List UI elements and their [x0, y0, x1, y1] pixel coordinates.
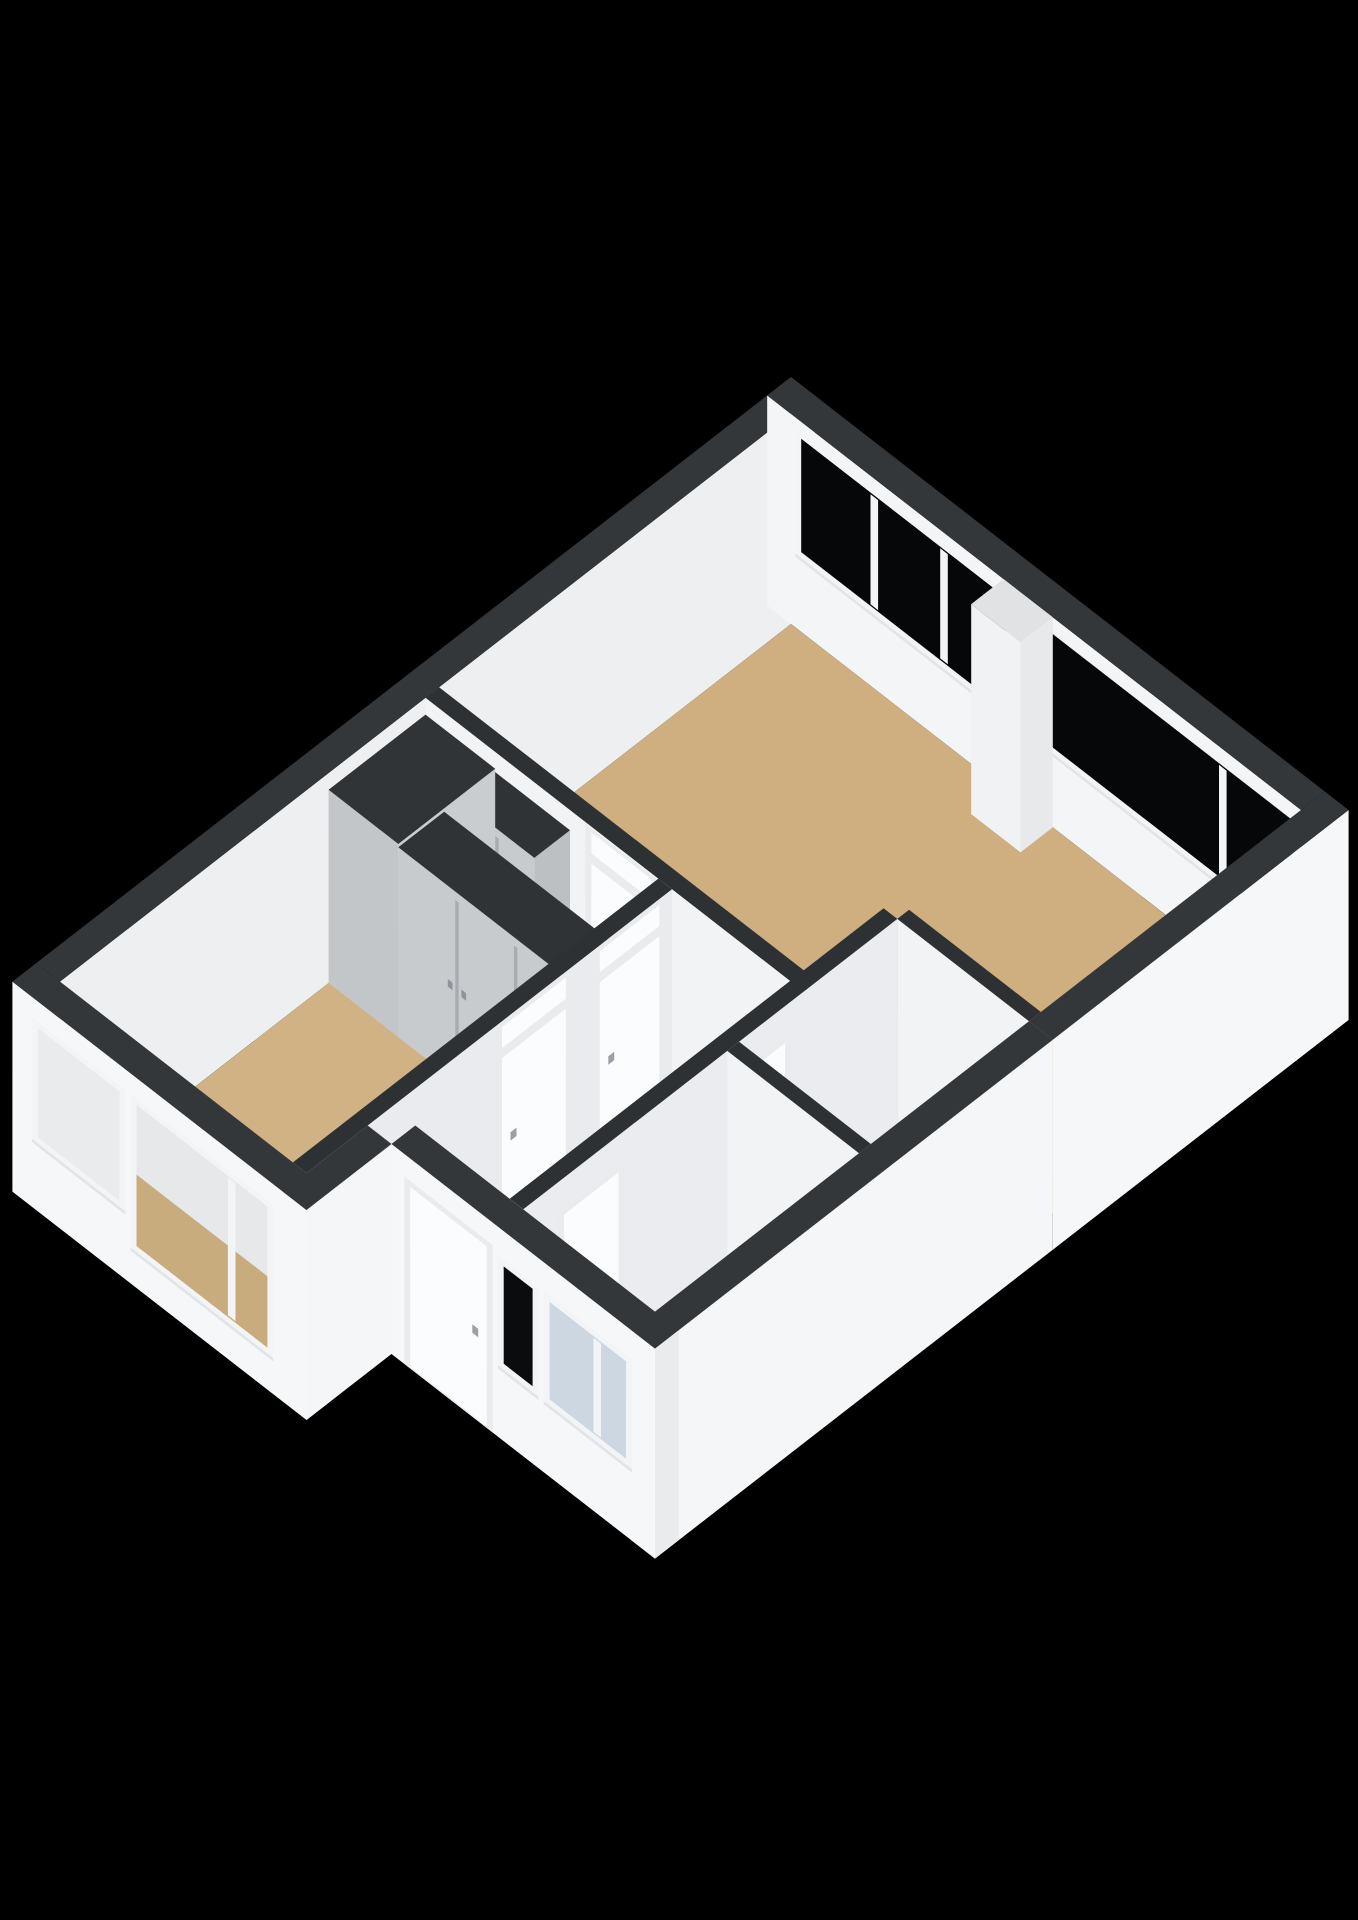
floorplan-3d-render	[0, 0, 1358, 1920]
floorplan-3d-view	[0, 0, 1358, 1920]
window-pier	[971, 579, 1053, 852]
